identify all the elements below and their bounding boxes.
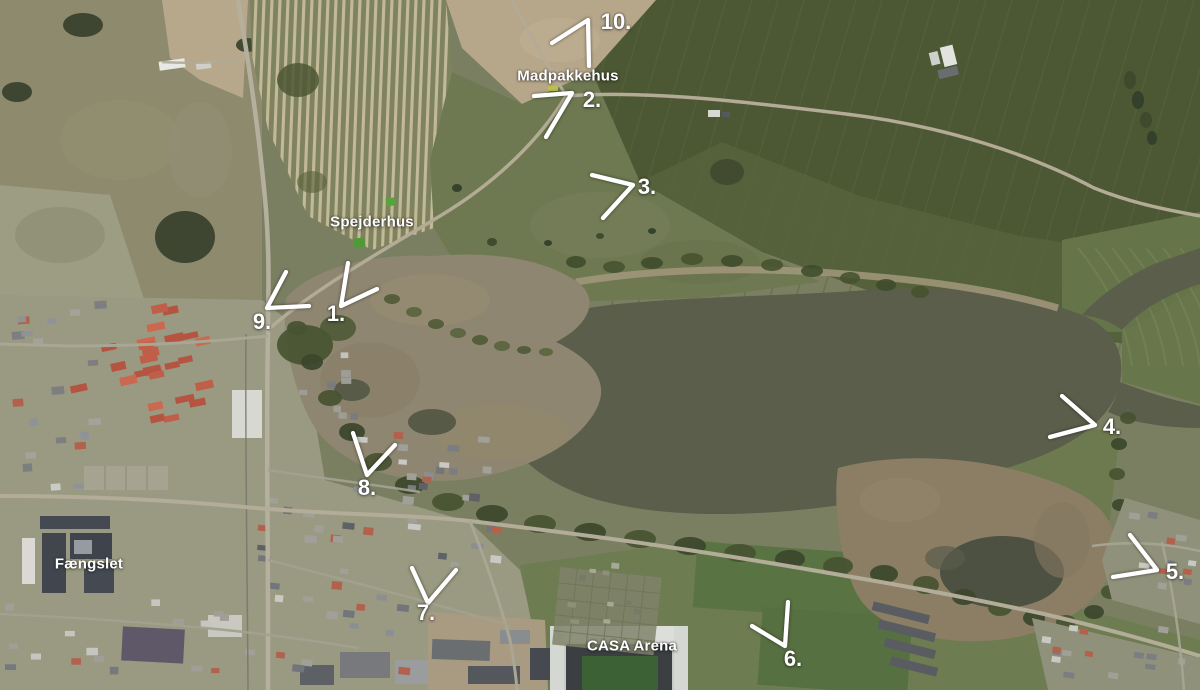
pond [63,13,103,37]
stadium-pitch [582,656,658,690]
spejderhus-hut [353,237,365,248]
northwest-grassland [0,0,262,302]
long-white-building [232,390,262,438]
construction-area [428,612,556,690]
allotment-gardens [552,567,662,655]
school-building [121,626,185,663]
aerial-photo-background [0,0,1200,690]
madpakkehus-hut [548,86,558,91]
field-pond [710,159,744,185]
annotated-aerial-map: 1.2.3.4.5.6.7.8.9.10.MadpakkehusSpejderh… [0,0,1200,690]
